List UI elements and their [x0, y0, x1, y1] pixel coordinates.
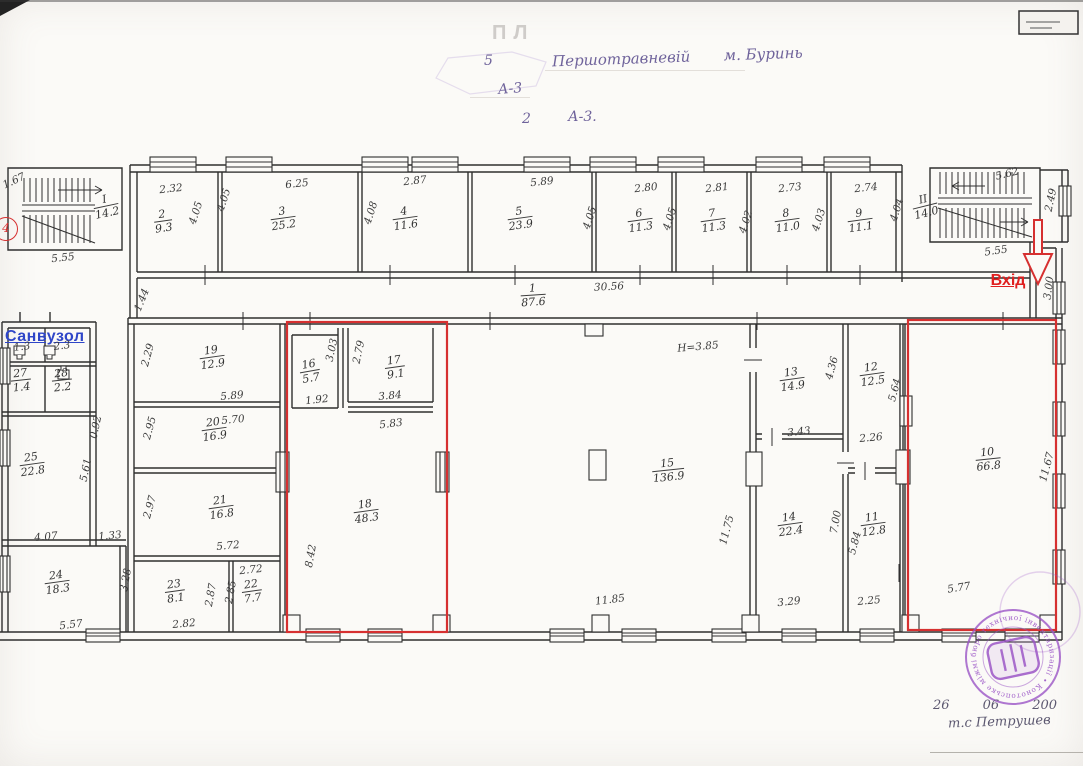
dimension-label: 5.55: [984, 243, 1009, 258]
header-litera: А-3: [497, 80, 522, 98]
dimension-label: 3.28: [118, 567, 134, 592]
dimension-label: 0.92: [88, 414, 105, 439]
header-litera-2: А-3.: [568, 109, 597, 125]
dimension-label: 11.75: [717, 514, 736, 546]
dimension-label: 4.02: [737, 209, 756, 235]
dimension-label: 6.25: [285, 177, 310, 191]
room-label: 2522.8: [18, 450, 46, 480]
dimension-label: 8.42: [303, 543, 319, 568]
dimension-label: 2.80: [634, 181, 659, 195]
bottom-rule: [930, 752, 1083, 753]
scan-edge-line: [0, 0, 1083, 2]
dimension-label: 4.05: [581, 205, 600, 231]
room-label: 1912.9: [198, 343, 226, 373]
floor-plan-page: бюро технічної інвентаризації • Конотопс…: [0, 0, 1083, 766]
dimension-label: 1.3: [13, 340, 31, 354]
room-label: 711.3: [699, 206, 727, 236]
dimension-label: 1.33: [98, 529, 122, 543]
dimension-label: 5.89: [530, 175, 555, 189]
dimension-label: 3.00: [1041, 276, 1056, 301]
header-street-city: Першотравневій м. Буринь: [552, 44, 803, 71]
room-label: 187.6: [520, 282, 546, 310]
dimension-label: 4.03: [810, 207, 829, 233]
red-circle-marker: 4: [0, 217, 18, 241]
dimension-label: 2.29: [139, 342, 157, 368]
room-label: 238.1: [163, 577, 187, 606]
header-floor-number: 2: [522, 111, 531, 127]
dimension-label: 2.87: [403, 174, 428, 188]
header-building-number: 5: [484, 53, 493, 69]
dimension-label: 2.95: [141, 415, 159, 441]
room-label: 2116.8: [207, 493, 235, 523]
dimension-label: 2.25: [857, 594, 881, 608]
dimension-label: 5.62: [994, 165, 1020, 182]
dimension-label: 5.70: [221, 413, 245, 427]
dimension-label: 4.05: [215, 187, 234, 213]
room-label: 1848.3: [352, 497, 380, 527]
dimension-label: 4.04: [888, 197, 907, 223]
room-label: 1314.9: [778, 365, 806, 395]
room-label: 523.9: [506, 204, 534, 234]
dimension-label: 2.49: [1043, 187, 1060, 212]
dimension-label: 5.55: [51, 251, 76, 265]
dimension-label: 2.87: [203, 582, 219, 607]
dimension-label: 2.26: [859, 431, 883, 445]
dimension-label: 3.03: [324, 337, 341, 362]
entrance-label: Вхід: [973, 272, 1043, 290]
form-line: [545, 70, 745, 71]
dimension-label: 11.67: [1037, 451, 1056, 483]
dimension-label: 5.64: [886, 377, 904, 403]
dimension-label: 2.73: [778, 181, 803, 195]
room-label: 611.3: [626, 206, 654, 236]
dimension-label: 4.07: [34, 530, 58, 544]
dimension-label: 4.36: [823, 355, 841, 381]
room-label: 15136.9: [651, 456, 685, 486]
dimension-label: 5.77: [947, 580, 972, 596]
room-label: 179.1: [383, 353, 407, 382]
dimension-label: 2.85: [223, 579, 239, 604]
room-label: 411.6: [391, 204, 419, 234]
labels-layer: ПЛ 5 Першотравневій м. Буринь А-3 2 А-3.…: [0, 0, 1083, 766]
room-label: 165.7: [298, 357, 322, 387]
dimension-label: 5.83: [379, 417, 404, 432]
room-label: ІІ14.0: [910, 191, 940, 223]
room-label: І14.2: [91, 191, 121, 222]
room-label: 227.7: [240, 577, 264, 606]
dimension-label: 4.08: [362, 200, 381, 226]
dimension-label: 2.82: [172, 617, 196, 631]
room-label: 29.3: [152, 207, 173, 236]
dimension-label: 1.67: [1, 171, 27, 192]
room-label: 1422.4: [776, 510, 804, 540]
dimension-label: 7.00: [828, 509, 844, 534]
stamp-signature: т.с Петрушев: [948, 712, 1083, 732]
dimension-label: 5.57: [59, 618, 84, 633]
dimension-label: 2.97: [141, 494, 159, 520]
room-label: 271.4: [10, 367, 33, 396]
dimension-label: 3.43: [787, 425, 812, 439]
dimension-label: Н=3.85: [677, 339, 719, 355]
dimension-label: 4.05: [661, 206, 680, 232]
dimension-label: 2.3: [53, 339, 71, 353]
dimension-label: 5.61: [78, 457, 95, 482]
dimension-label: 2.79: [351, 339, 368, 364]
dimension-label: 2.81: [705, 181, 730, 195]
dimension-label: 3.84: [378, 389, 402, 403]
dimension-label: 30.56: [594, 280, 625, 294]
dimension-label: 4.05: [187, 200, 206, 226]
dimension-label: 5.89: [220, 389, 244, 403]
dimension-label: 11.85: [594, 592, 625, 608]
room-label: 282.2: [51, 367, 74, 396]
room-label: 2418.3: [43, 568, 71, 598]
faded-header-text: ПЛ: [492, 22, 534, 45]
dimension-label: 2.72: [239, 563, 264, 577]
dimension-label: 5.72: [216, 539, 240, 553]
room-label: 1212.5: [858, 360, 886, 390]
room-label: 1066.8: [974, 445, 1001, 474]
dimension-label: 2.74: [854, 181, 879, 195]
dimension-label: 5.84: [846, 530, 864, 556]
room-label: 911.1: [846, 206, 874, 236]
stamp-date: 26 06 200: [933, 698, 1083, 713]
dimension-label: 3.29: [777, 595, 802, 609]
dimension-label: 2.32: [159, 182, 184, 196]
dimension-label: 1.92: [305, 393, 330, 407]
room-label: 325.2: [269, 204, 297, 234]
dimension-label: 1.44: [132, 287, 152, 313]
room-label: 811.0: [773, 206, 801, 236]
